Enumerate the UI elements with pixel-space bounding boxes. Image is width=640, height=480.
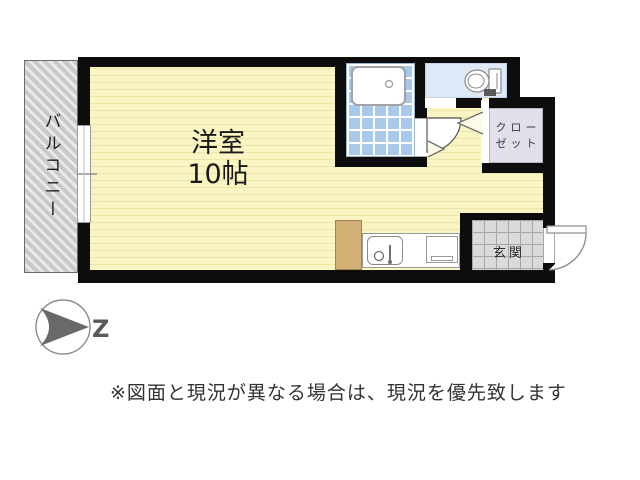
balcony-area: バルコニー [24, 60, 78, 273]
entrance-label: 玄関 [472, 242, 543, 261]
north-arrow-label: Z [92, 315, 109, 343]
main-room-name: 洋室 [158, 128, 278, 159]
stove-drawer-icon [431, 256, 453, 261]
closet-area: クロー ゼット [489, 108, 543, 163]
closet-label-line2: ゼット [492, 136, 541, 152]
wall-closet-bottom [482, 163, 555, 173]
north-arrow-icon: Z [36, 300, 109, 354]
kitchen-sink-icon [367, 236, 403, 265]
balcony-label: バルコニー [39, 112, 64, 222]
toilet-door-opening [425, 97, 456, 108]
wall-right-lower [543, 263, 555, 283]
wall-entry-top [460, 213, 555, 220]
toilet-room-floor [425, 63, 507, 98]
main-room-size: 10帖 [158, 159, 278, 190]
entry-door-opening [543, 228, 555, 263]
outside-area [555, 90, 640, 290]
wall-toilet-bottom [456, 97, 482, 108]
refrigerator-space [335, 220, 362, 270]
floorplan-canvas: バルコニー クロー ゼット 玄関 洋室 10帖 [0, 0, 640, 480]
wall-closet-top [489, 97, 555, 108]
wall-entry-left [460, 213, 472, 283]
main-room-label: 洋室 10帖 [158, 128, 278, 190]
closet-door-opening [481, 100, 489, 163]
wall-left-upper [78, 57, 90, 125]
bathtub-icon [351, 66, 406, 106]
wall-bath-left [335, 57, 346, 167]
outside-area [520, 40, 640, 97]
wall-bath-bottom [335, 157, 427, 167]
window-icon [77, 125, 91, 223]
closet-label-line1: クロー [492, 120, 541, 136]
bath-door-opening [415, 118, 427, 157]
disclaimer-text: ※図面と現況が異なる場合は、現況を優先致します [110, 378, 610, 405]
wall-bottom [78, 270, 555, 283]
